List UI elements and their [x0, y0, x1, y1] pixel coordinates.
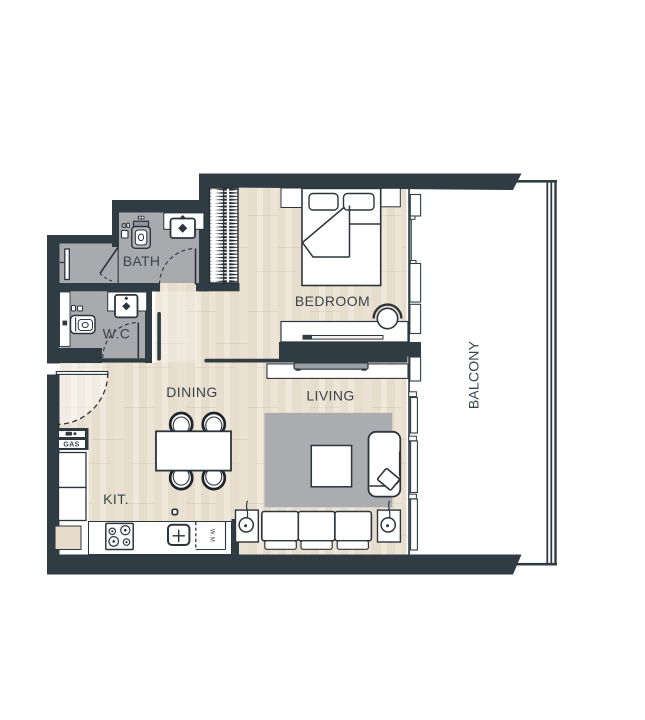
svg-text:LIVING: LIVING [306, 387, 354, 403]
svg-text:BALCONY: BALCONY [466, 340, 482, 409]
svg-text:BEDROOM: BEDROOM [295, 293, 370, 309]
svg-text:DINING: DINING [166, 384, 217, 400]
svg-text:GAS: GAS [63, 442, 79, 449]
svg-text:BATH: BATH [123, 253, 161, 269]
svg-text:W.C: W.C [103, 326, 131, 342]
svg-text:W.M: W.M [209, 529, 215, 542]
svg-text:KIT.: KIT. [103, 491, 129, 507]
